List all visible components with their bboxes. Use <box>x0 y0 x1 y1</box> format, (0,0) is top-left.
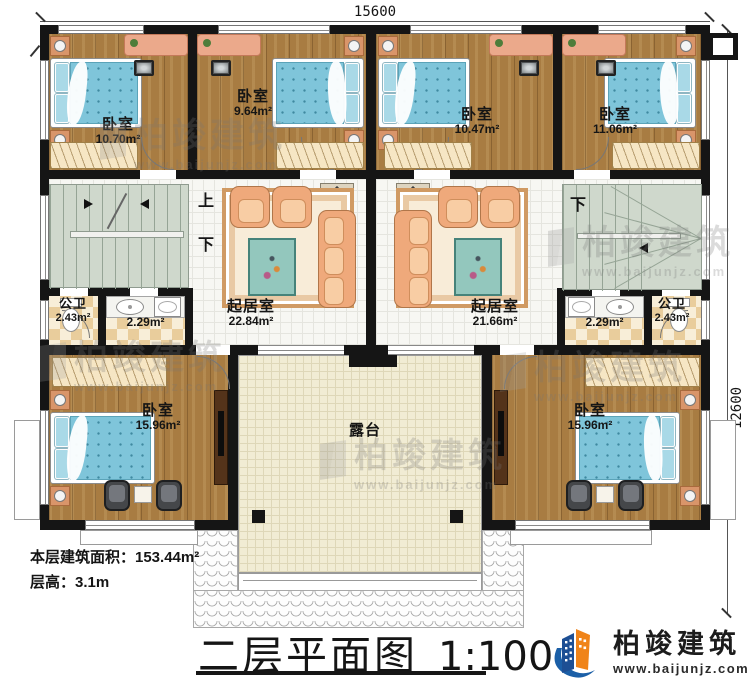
sofa-cushion <box>446 199 472 223</box>
room-label-living-left: 起居室 22.84m² <box>196 298 306 329</box>
window <box>701 195 710 280</box>
window <box>598 25 686 34</box>
wardrobe <box>585 357 700 387</box>
desk <box>489 34 553 56</box>
nightstand <box>50 486 70 506</box>
title-underline <box>196 671 486 675</box>
wardrobe <box>52 357 167 387</box>
stair-rail <box>70 231 184 238</box>
room-label-bedroom-tmr: 卧室 10.47m² <box>427 106 527 137</box>
computer-monitor <box>596 60 616 76</box>
chair <box>566 480 592 511</box>
brand-url: www.baijunjz.com <box>613 661 749 676</box>
stair-down-label: 下 <box>570 191 586 215</box>
flue-niche <box>708 33 738 60</box>
window <box>85 520 195 530</box>
stair-arrow <box>84 199 93 209</box>
pillow <box>661 449 675 479</box>
chair <box>104 480 130 511</box>
wall-bath-left-right <box>185 288 193 355</box>
wall-terrace-left <box>228 345 238 530</box>
room-label-terrace: 露台 <box>330 422 400 439</box>
pillow <box>55 417 69 447</box>
sofa-cushion <box>324 247 344 275</box>
nightstand <box>344 36 364 56</box>
window <box>515 520 650 530</box>
brand-logo: 柏竣建筑 www.baijunjz.com <box>545 620 749 678</box>
floor-terrace <box>238 355 482 573</box>
wall-terrace-right <box>482 345 492 530</box>
terrace-column <box>450 510 463 523</box>
stair-arrow <box>639 243 648 253</box>
sliding-door-right <box>388 345 474 355</box>
sofa <box>318 210 356 308</box>
staircase-left <box>49 184 189 288</box>
wardrobe <box>612 142 700 169</box>
brand-name: 柏竣建筑 <box>613 622 749 661</box>
nightstand <box>680 486 700 506</box>
sofa-cushion <box>488 199 514 223</box>
dimension-top-value: 15600 <box>338 4 412 20</box>
room-label-laundry-left: 2.29m² <box>106 316 185 330</box>
sink <box>606 299 634 315</box>
nightstand <box>680 390 700 410</box>
bay-window-left <box>14 420 40 520</box>
window-sill <box>80 530 198 545</box>
nightstand <box>50 390 70 410</box>
wall-center-footing <box>349 355 397 367</box>
door-opening <box>414 170 450 179</box>
side-table <box>596 486 614 503</box>
desk <box>562 34 626 56</box>
dimension-line-right <box>727 30 728 615</box>
sliding-door-left <box>258 345 344 355</box>
dimension-line-top <box>40 21 710 22</box>
window <box>701 60 710 140</box>
window <box>410 25 522 34</box>
tv-cabinet <box>494 390 508 485</box>
sofa <box>394 210 432 308</box>
window <box>218 25 330 34</box>
nightstand <box>50 36 70 56</box>
side-table <box>134 486 152 503</box>
sofa-cushion <box>324 277 344 305</box>
washing-machine <box>154 297 181 317</box>
floor-plan-canvas: 15600 12600 <box>0 0 750 690</box>
room-label-laundry-right: 2.29m² <box>565 316 644 330</box>
room-label-bedroom-bl: 卧室 15.96m² <box>108 402 208 433</box>
wardrobe <box>384 142 472 169</box>
door-opening <box>500 345 534 355</box>
door-opening <box>300 170 336 179</box>
window <box>40 410 49 505</box>
washing-machine <box>568 297 595 317</box>
coffee-table <box>248 238 296 296</box>
room-label-bedroom-tl: 卧室 10.70m² <box>68 116 168 147</box>
floor-height-note: 层高：3.1m <box>30 571 109 592</box>
armchair <box>480 186 520 228</box>
armchair <box>438 186 478 228</box>
sofa-cushion <box>324 217 344 245</box>
stair-rail <box>577 233 681 239</box>
room-label-bath-left: 公卫 2.43m² <box>38 297 108 325</box>
door-opening <box>60 288 88 296</box>
chair <box>156 480 182 511</box>
room-label-living-right: 起居室 21.66m² <box>440 298 550 329</box>
door-opening <box>130 288 158 296</box>
desk <box>124 34 188 56</box>
room-label-bedroom-tml: 卧室 9.64m² <box>203 88 303 119</box>
room-label-bath-right: 公卫 2.43m² <box>637 297 707 325</box>
nightstand <box>676 36 696 56</box>
floor-area-note: 本层建筑面积：153.44m² <box>30 546 199 567</box>
computer-monitor <box>211 60 231 76</box>
brand-logo-icon <box>545 620 605 678</box>
witness-tick <box>30 45 41 57</box>
nightstand <box>378 36 398 56</box>
pillow <box>677 63 691 92</box>
terrace-column <box>252 510 265 523</box>
wall-bath-right-left <box>557 288 565 355</box>
window <box>40 60 49 140</box>
window <box>58 25 144 34</box>
wall-divider-tl <box>188 25 197 170</box>
sofa-cushion <box>409 247 429 275</box>
desk <box>197 34 261 56</box>
stair-arrow <box>140 199 149 209</box>
door-opening <box>574 170 610 179</box>
wall-divider-tr <box>553 25 562 170</box>
window <box>701 410 710 505</box>
stair-down-label: 下 <box>198 231 214 255</box>
pillow <box>383 63 397 92</box>
pillow <box>677 94 691 123</box>
chair <box>618 480 644 511</box>
wall-center <box>366 25 376 355</box>
coffee-table <box>454 238 502 296</box>
tv-cabinet <box>214 390 228 485</box>
computer-monitor <box>519 60 539 76</box>
bay-window-right <box>710 420 736 520</box>
sofa-cushion <box>280 199 306 223</box>
room-label-bedroom-tr: 卧室 11.06m² <box>565 106 665 137</box>
sofa-cushion <box>238 199 264 223</box>
armchair <box>230 186 270 228</box>
computer-monitor <box>134 60 154 76</box>
stair-up-label: 上 <box>198 187 214 211</box>
armchair <box>272 186 312 228</box>
door-opening <box>196 345 230 355</box>
pillow <box>55 63 69 92</box>
door-opening <box>140 170 176 179</box>
window <box>40 195 49 280</box>
pillow <box>345 94 359 123</box>
brand-text: 柏竣建筑 www.baijunjz.com <box>613 622 749 676</box>
sofa-cushion <box>409 217 429 245</box>
sink <box>116 299 144 315</box>
sofa-cushion <box>409 277 429 305</box>
room-label-bedroom-br: 卧室 15.96m² <box>540 402 640 433</box>
wardrobe <box>276 142 364 169</box>
window-sill <box>510 530 652 545</box>
pillow <box>345 63 359 92</box>
pillow <box>661 417 675 447</box>
